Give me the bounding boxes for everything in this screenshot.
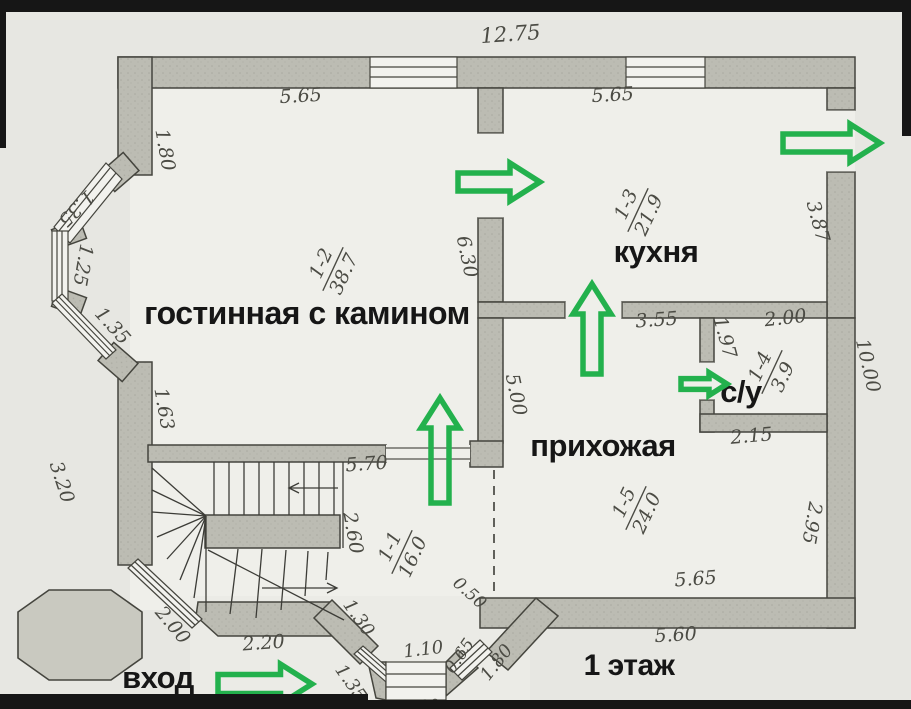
dimension-label: 5.65 xyxy=(279,84,322,108)
left-wall-lower xyxy=(118,362,152,565)
porch-wall-band xyxy=(196,602,332,636)
middle-wall-upper xyxy=(478,88,503,133)
entrance-label: вход xyxy=(122,660,195,695)
dimension-label: 5.65 xyxy=(674,567,718,592)
right-wall-bottom xyxy=(827,318,855,628)
dimension-label: 2.00 xyxy=(762,305,807,331)
porch-window-front xyxy=(386,662,446,700)
right-wall-top xyxy=(827,88,855,110)
hall-corner-stub xyxy=(470,441,503,467)
hall-left-wall xyxy=(478,318,503,443)
floor-label: 1 этаж xyxy=(584,649,676,682)
dimension-label: 5.70 xyxy=(345,452,389,477)
living-top-window xyxy=(370,57,457,88)
stair-landing-wall xyxy=(205,515,340,548)
kitchen-hall-wall-left xyxy=(478,302,565,318)
room-label-hall: прихожая xyxy=(530,428,675,463)
dimension-label: 12.75 xyxy=(480,20,542,48)
bay-window-middle xyxy=(52,231,68,301)
right-wall-mid xyxy=(827,172,855,318)
room-label-kitchen: кухня xyxy=(614,234,699,269)
dimension-label: 3.55 xyxy=(635,308,679,333)
kitchen-top-window xyxy=(626,57,705,88)
scanned-floor-plan: 12.755.655.651.801.351.251.356.303.8710.… xyxy=(0,0,911,709)
dimension-label: 2.20 xyxy=(241,631,286,656)
room-label-bathroom: с/у xyxy=(720,374,763,409)
top-wall xyxy=(118,57,855,88)
floor-plan-svg: 12.755.655.651.801.351.251.356.303.8710.… xyxy=(0,0,911,709)
dimension-label: 5.60 xyxy=(654,623,697,647)
room-label-living: гостинная с камином xyxy=(144,295,470,331)
middle-wall-lower xyxy=(478,218,503,302)
dimension-label: 2.15 xyxy=(728,423,773,449)
dimension-label: 5.65 xyxy=(591,83,634,107)
